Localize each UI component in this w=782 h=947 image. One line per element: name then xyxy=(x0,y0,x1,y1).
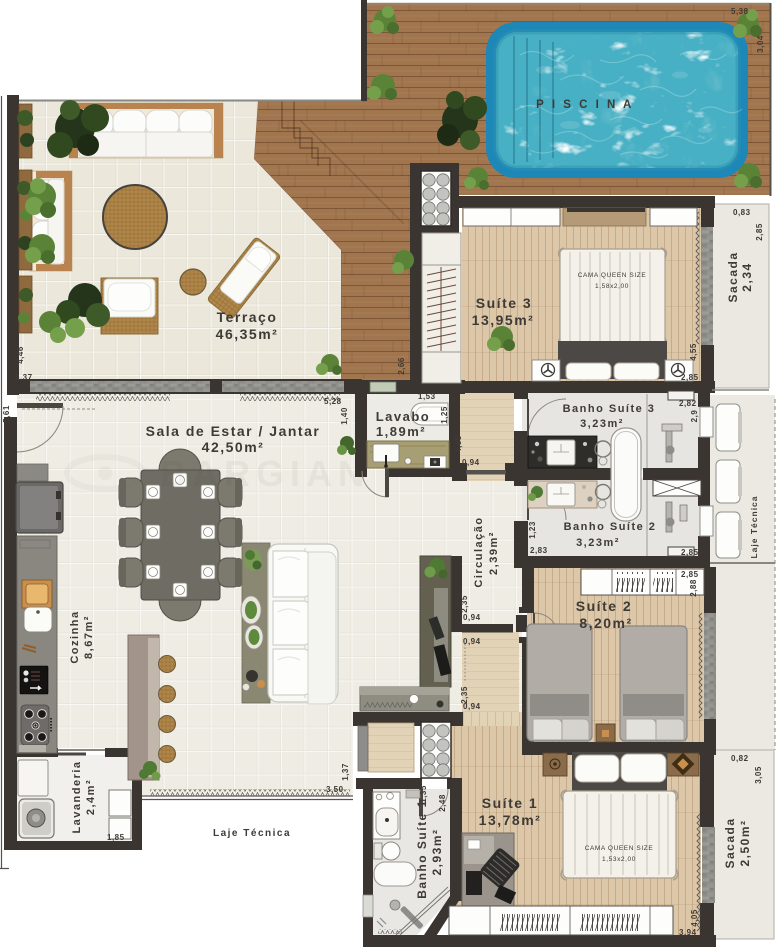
svg-text:Circulação: Circulação xyxy=(473,516,485,587)
svg-text:Banho Suíte 1: Banho Suíte 1 xyxy=(415,799,429,899)
svg-text:Lavanderia: Lavanderia xyxy=(71,760,83,833)
svg-text:Laje Técnica: Laje Técnica xyxy=(749,495,759,558)
svg-text:1,53: 1,53 xyxy=(418,392,436,401)
svg-text:2,35: 2,35 xyxy=(460,595,469,613)
svg-text:1,40: 1,40 xyxy=(340,407,349,425)
svg-text:Suíte 1: Suíte 1 xyxy=(482,795,538,811)
svg-text:Terraço: Terraço xyxy=(217,309,278,325)
svg-text:1,37: 1,37 xyxy=(341,763,350,781)
svg-text:13,78m²: 13,78m² xyxy=(479,812,542,828)
svg-text:Sala de Estar / Jantar: Sala de Estar / Jantar xyxy=(146,423,321,439)
svg-text:2,82: 2,82 xyxy=(679,399,697,408)
svg-text:3,23m²: 3,23m² xyxy=(576,537,620,549)
svg-text:CAMA QUEEN SIZE: CAMA QUEEN SIZE xyxy=(578,272,647,279)
svg-text:3,05: 3,05 xyxy=(754,766,763,784)
svg-text:2,93m²: 2,93m² xyxy=(430,828,444,875)
svg-text:1,23: 1,23 xyxy=(528,521,537,539)
svg-text:P I S C I N A: P I S C I N A xyxy=(536,99,634,111)
svg-text:4,46: 4,46 xyxy=(16,346,25,364)
svg-text:0,83: 0,83 xyxy=(733,208,751,217)
svg-text:1,85: 1,85 xyxy=(107,833,125,842)
svg-text:4,85: 4,85 xyxy=(454,435,463,453)
svg-text:Sacada: Sacada xyxy=(726,251,740,302)
svg-text:0,94: 0,94 xyxy=(463,613,481,622)
svg-text:1,89m²: 1,89m² xyxy=(376,424,426,439)
svg-text:3,23m²: 3,23m² xyxy=(580,418,624,430)
svg-text:2,85: 2,85 xyxy=(681,570,699,579)
svg-text:0,82: 0,82 xyxy=(731,754,749,763)
svg-text:2,66: 2,66 xyxy=(397,357,406,375)
svg-text:2,88: 2,88 xyxy=(689,579,698,597)
svg-text:Suíte 2: Suíte 2 xyxy=(576,598,632,614)
svg-text:5,28: 5,28 xyxy=(324,397,342,406)
svg-text:0,94: 0,94 xyxy=(463,702,481,711)
svg-text:2,85: 2,85 xyxy=(681,548,699,557)
svg-text:2,85: 2,85 xyxy=(681,373,699,382)
svg-text:8,20m²: 8,20m² xyxy=(579,615,632,631)
svg-text:Banho Suíte 3: Banho Suíte 3 xyxy=(563,403,656,415)
svg-text:2,34: 2,34 xyxy=(740,262,754,291)
svg-text:1,58x2,00: 1,58x2,00 xyxy=(595,283,629,290)
svg-text:8,67m²: 8,67m² xyxy=(83,615,95,659)
svg-text:1,25: 1,25 xyxy=(440,406,449,424)
svg-text:2,83: 2,83 xyxy=(530,546,548,555)
svg-text:Laje Técnica: Laje Técnica xyxy=(213,828,291,839)
svg-text:5,38: 5,38 xyxy=(731,7,749,16)
svg-text:13,95m²: 13,95m² xyxy=(472,312,535,328)
svg-text:CAMA QUEEN SIZE: CAMA QUEEN SIZE xyxy=(585,845,654,852)
svg-text:Cozinha: Cozinha xyxy=(69,610,81,663)
svg-text:3,94: 3,94 xyxy=(679,928,697,937)
svg-text:2,39m²: 2,39m² xyxy=(488,531,500,575)
svg-text:Sacada: Sacada xyxy=(723,817,737,868)
svg-text:0,94: 0,94 xyxy=(463,637,481,646)
svg-text:42,50m²: 42,50m² xyxy=(202,439,265,455)
svg-text:5,61: 5,61 xyxy=(2,405,11,423)
svg-text:3,50: 3,50 xyxy=(326,785,344,794)
svg-text:2,85: 2,85 xyxy=(755,223,764,241)
svg-text:2,4m²: 2,4m² xyxy=(85,779,97,815)
svg-text:BARGIAN: BARGIAN xyxy=(160,453,370,494)
svg-text:6,37: 6,37 xyxy=(15,373,33,382)
svg-text:Banho Suíte 2: Banho Suíte 2 xyxy=(564,521,657,533)
svg-text:4,55: 4,55 xyxy=(689,343,698,361)
svg-text:3,04: 3,04 xyxy=(756,35,765,53)
svg-text:0,94: 0,94 xyxy=(462,458,480,467)
svg-text:2,50m²: 2,50m² xyxy=(738,819,752,866)
svg-text:Suíte 3: Suíte 3 xyxy=(476,295,532,311)
svg-text:Lavabo: Lavabo xyxy=(376,409,431,424)
svg-text:4,05: 4,05 xyxy=(690,909,699,927)
svg-text:2,9: 2,9 xyxy=(690,410,699,423)
svg-text:1,53x2,00: 1,53x2,00 xyxy=(602,856,636,863)
svg-text:46,35m²: 46,35m² xyxy=(216,326,279,342)
svg-text:1,35: 1,35 xyxy=(419,785,428,803)
svg-text:2,48: 2,48 xyxy=(438,794,447,812)
